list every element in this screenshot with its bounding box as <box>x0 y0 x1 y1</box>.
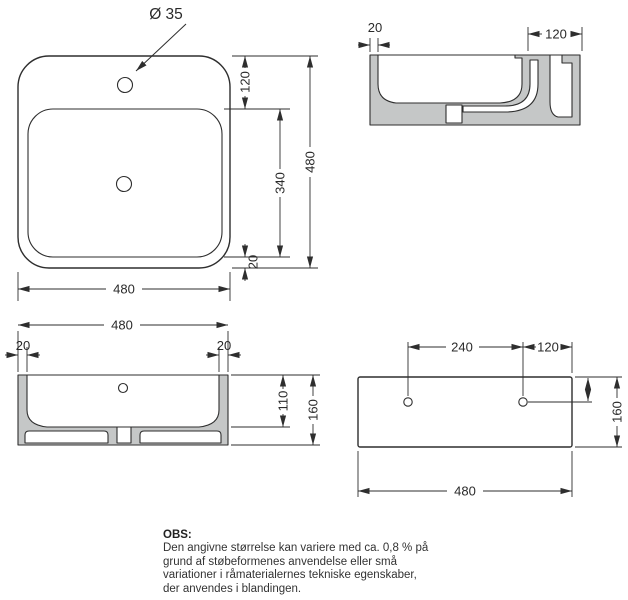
top-view: Ø 35 120 340 480 <box>18 6 318 301</box>
dim-basin-depth: 110 <box>276 375 291 427</box>
dim-front-wall-left: 20 <box>5 338 40 355</box>
faucet-hole-front <box>119 384 128 393</box>
dim-label: 480 <box>303 151 318 173</box>
note-line: grund af støbeformenes anvendelse eller … <box>163 556 473 569</box>
dim-label: 20 <box>217 338 231 353</box>
dim-overflow-width: 120 <box>528 27 582 42</box>
dim-label: 120 <box>537 340 559 355</box>
technical-drawing: Ø 35 120 340 480 <box>0 0 628 600</box>
dim-label: 120 <box>238 71 253 93</box>
dim-wall-thickness: 20 <box>358 20 390 45</box>
dim-front-overall-height: 160 <box>306 375 321 445</box>
dim-overall-depth: 480 <box>303 56 318 268</box>
side-section-view: 20 120 <box>358 20 582 125</box>
dim-label: 480 <box>113 282 135 297</box>
dim-overall-width: 480 <box>18 282 230 297</box>
dim-rear-width: 480 <box>358 484 572 499</box>
dim-rear-height: 160 <box>610 377 625 447</box>
dim-label: 20 <box>16 338 30 353</box>
dim-label: 160 <box>610 401 625 423</box>
dim-hole-spacing: 240 <box>408 340 523 355</box>
front-section-view: 480 20 20 110 160 <box>5 318 321 446</box>
dim-label-faucet-diameter: Ø 35 <box>149 6 183 23</box>
dim-hole-inset: 120 <box>238 56 253 109</box>
rear-view: 240 120 160 480 <box>358 340 625 499</box>
dim-label: 340 <box>273 172 288 194</box>
note: OBS: Den angivne størrelse kan variere m… <box>163 529 473 596</box>
mounting-hole-right <box>519 398 527 406</box>
dim-basin-length: 340 <box>273 109 288 257</box>
dim-label: 480 <box>111 318 133 333</box>
dim-front-overall-width: 480 <box>18 318 228 333</box>
side-section-body <box>370 55 580 125</box>
drain-hole <box>117 177 132 192</box>
dim-label: 20 <box>368 20 382 35</box>
dim-front-wall-right: 20 <box>206 338 241 355</box>
dim-label: 480 <box>454 484 476 499</box>
note-line: Den angivne størrelse kan variere med ca… <box>163 542 473 555</box>
dim-rim: 20 <box>245 244 261 281</box>
dim-label: 20 <box>246 255 261 269</box>
dim-label: 160 <box>306 399 321 421</box>
note-line: der anvendes i blandingen. <box>163 583 473 596</box>
rear-body <box>358 377 572 447</box>
note-line: variationer i råmaterialernes tekniske e… <box>163 569 473 582</box>
mounting-hole-left <box>404 398 412 406</box>
dim-hole-to-edge: 120 <box>523 340 572 355</box>
dim-label: 120 <box>545 27 567 42</box>
dim-label: 110 <box>276 391 291 412</box>
dim-label: 240 <box>451 340 473 355</box>
faucet-hole <box>118 78 133 93</box>
note-heading: OBS: <box>163 529 473 542</box>
